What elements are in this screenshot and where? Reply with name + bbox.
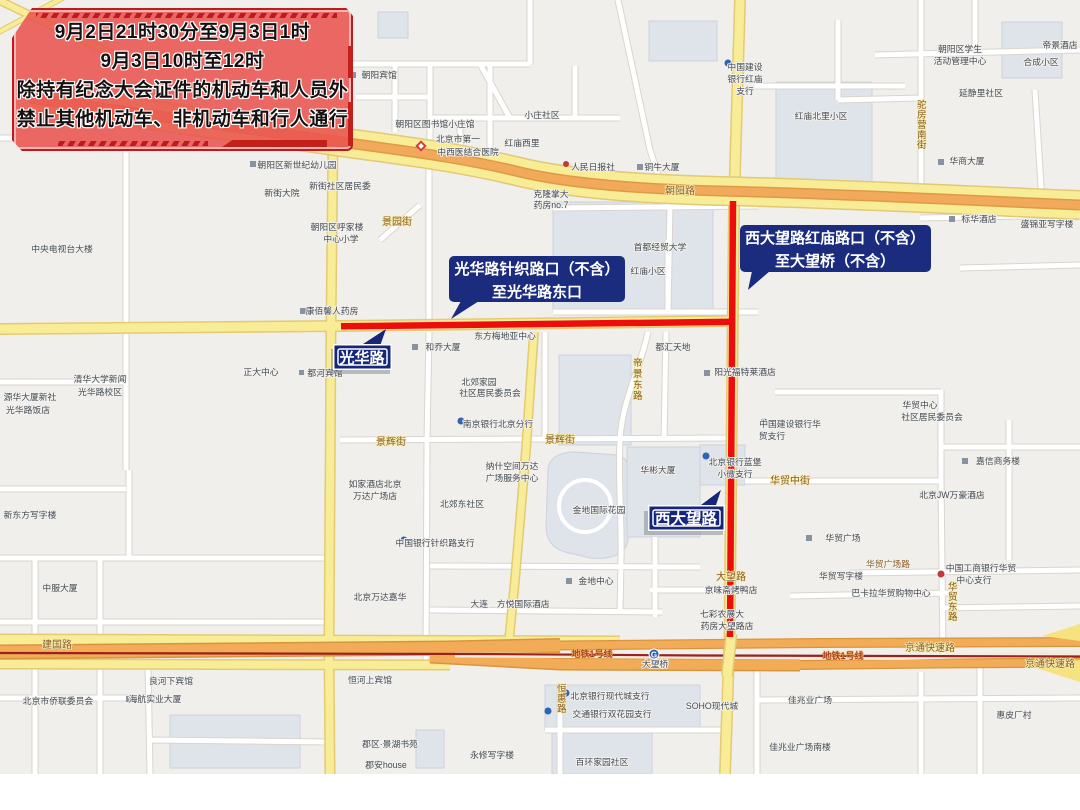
svg-text:北京JW万豪酒店: 北京JW万豪酒店	[919, 489, 985, 500]
svg-text:华商大厦: 华商大厦	[949, 155, 984, 166]
svg-text:京通快速路: 京通快速路	[1025, 657, 1075, 670]
svg-text:金地中心: 金地中心	[578, 575, 613, 586]
svg-text:华贸写字楼: 华贸写字楼	[819, 570, 863, 581]
svg-text:佳兆业广场: 佳兆业广场	[788, 694, 832, 705]
svg-text:北郊东社区: 北郊东社区	[440, 498, 484, 509]
svg-text:红庙北里小区: 红庙北里小区	[795, 110, 848, 121]
svg-text:佳兆业广场南楼: 佳兆业广场南楼	[769, 741, 831, 752]
svg-text:景辉街: 景辉街	[376, 435, 406, 448]
svg-text:标华酒店: 标华酒店	[961, 213, 996, 224]
svg-text:北京市第一: 北京市第一	[436, 133, 480, 144]
svg-text:如家酒店北京: 如家酒店北京	[349, 478, 402, 489]
svg-text:支行: 支行	[736, 85, 754, 96]
svg-text:京通快速路: 京通快速路	[905, 641, 955, 654]
svg-text:贸支行: 贸支行	[759, 430, 786, 441]
svg-text:郡区·景湖书苑: 郡区·景湖书苑	[362, 738, 418, 749]
svg-text:驼房营南街: 驼房营南街	[917, 99, 927, 151]
svg-text:至大望桥（不含）: 至大望桥（不含）	[775, 252, 895, 270]
svg-text:中心小学: 中心小学	[323, 233, 358, 244]
svg-text:新街大院: 新街大院	[264, 187, 299, 198]
svg-text:惠皮厂村: 惠皮厂村	[996, 709, 1031, 720]
svg-text:交通银行双花园支行: 交通银行双花园支行	[572, 708, 651, 719]
svg-text:万达广场店: 万达广场店	[353, 490, 397, 501]
svg-text:大望路: 大望路	[716, 570, 746, 583]
svg-text:百环家园社区: 百环家园社区	[576, 756, 629, 767]
svg-text:红庙西里: 红庙西里	[504, 137, 539, 148]
svg-text:社区居民委员会: 社区居民委员会	[901, 411, 963, 422]
svg-text:克隆掌大: 克隆掌大	[533, 188, 568, 199]
svg-text:地铁1号线: 地铁1号线	[571, 648, 612, 659]
svg-text:朝阳路: 朝阳路	[665, 184, 695, 197]
svg-text:至光华路东口: 至光华路东口	[492, 283, 582, 301]
svg-text:朝阳区图书馆小庄馆: 朝阳区图书馆小庄馆	[395, 118, 474, 129]
svg-text:帝景东路: 帝景东路	[633, 357, 643, 402]
svg-text:北郊家园: 北郊家园	[461, 376, 496, 387]
svg-text:郡安house: 郡安house	[365, 759, 407, 770]
svg-text:源华大厦新社: 源华大厦新社	[4, 391, 57, 402]
svg-text:正大中心: 正大中心	[243, 366, 278, 377]
svg-text:七彩农展大: 七彩农展大	[700, 608, 744, 619]
svg-text:大连 方悦国际酒店: 大连 方悦国际酒店	[470, 598, 549, 609]
svg-text:北京万达嘉华: 北京万达嘉华	[354, 591, 407, 602]
svg-text:中心支行: 中心支行	[956, 574, 991, 585]
svg-text:华贸广场: 华贸广场	[825, 532, 860, 543]
svg-text:阳光福特莱酒店: 阳光福特莱酒店	[714, 366, 776, 377]
svg-text:帝景酒店: 帝景酒店	[1042, 39, 1077, 50]
svg-text:良河下宾馆: 良河下宾馆	[149, 675, 193, 686]
svg-text:北京银行蓝堡: 北京银行蓝堡	[709, 456, 762, 467]
svg-text:景辉街: 景辉街	[545, 433, 575, 446]
svg-text:中国建设: 中国建设	[727, 61, 762, 72]
svg-text:延静里社区: 延静里社区	[959, 87, 1003, 98]
svg-text:中服大厦: 中服大厦	[42, 582, 77, 593]
svg-text:小微支行: 小微支行	[717, 468, 752, 479]
svg-text:朝阳宾馆: 朝阳宾馆	[359, 69, 397, 80]
svg-text:康佰馨人药房: 康佰馨人药房	[306, 305, 359, 316]
svg-text:南京银行北京分行: 南京银行北京分行	[463, 418, 534, 429]
svg-text:华贸东路: 华贸东路	[948, 581, 958, 623]
svg-text:都汇天地: 都汇天地	[655, 341, 690, 352]
svg-text:广场服务中心: 广场服务中心	[486, 472, 539, 483]
svg-text:光华路饭店: 光华路饭店	[6, 404, 50, 415]
svg-text:中国工商银行华贸: 中国工商银行华贸	[946, 562, 1017, 573]
svg-text:新东方写字楼: 新东方写字楼	[4, 509, 57, 520]
svg-text:景园街: 景园街	[382, 215, 412, 228]
svg-text:恒惠路: 恒惠路	[557, 683, 567, 715]
svg-text:华彬大厦: 华彬大厦	[640, 464, 675, 475]
svg-text:合成小区: 合成小区	[1023, 56, 1058, 67]
svg-text:红庙小区: 红庙小区	[630, 265, 665, 276]
svg-text:金地国际花园: 金地国际花园	[573, 504, 626, 515]
svg-text:银行红庙: 银行红庙	[727, 73, 762, 84]
svg-text:华贸广场路: 华贸广场路	[866, 558, 910, 569]
svg-text:建国路: 建国路	[42, 638, 72, 651]
svg-text:小庄社区: 小庄社区	[524, 109, 559, 120]
svg-text:药房no.7: 药房no.7	[534, 199, 569, 210]
svg-text:北京银行现代城支行: 北京银行现代城支行	[570, 690, 649, 701]
svg-text:光华路针织路口（不含）: 光华路针织路口（不含）	[453, 260, 619, 278]
svg-text:铜牛大厦: 铜牛大厦	[644, 161, 679, 172]
svg-text:华贸中街: 华贸中街	[770, 474, 810, 487]
svg-text:西大望路红庙路口（不含）: 西大望路红庙路口（不含）	[745, 229, 925, 247]
svg-text:永修写字楼: 永修写字楼	[470, 749, 514, 760]
svg-text:北京市侨联委员会: 北京市侨联委员会	[23, 695, 94, 706]
svg-text:中央电视台大楼: 中央电视台大楼	[31, 243, 93, 254]
svg-text:社区居民委员会: 社区居民委员会	[459, 387, 521, 398]
svg-text:大望桥: 大望桥	[642, 658, 669, 669]
svg-text:光华路校区: 光华路校区	[78, 386, 122, 397]
svg-text:朝阳区学生: 朝阳区学生	[938, 43, 982, 54]
svg-text:纳什空间万达: 纳什空间万达	[486, 460, 539, 471]
svg-text:华贸中心: 华贸中心	[902, 399, 937, 410]
svg-text:海航实业大厦: 海航实业大厦	[129, 693, 182, 704]
svg-text:朝阳区呼家楼: 朝阳区呼家楼	[311, 221, 364, 232]
svg-text:首都经贸大学: 首都经贸大学	[634, 241, 687, 252]
svg-text:新街社区居民委: 新街社区居民委	[309, 180, 371, 191]
svg-text:和乔大厦: 和乔大厦	[425, 341, 460, 352]
svg-text:活动管理中心: 活动管理中心	[934, 55, 987, 66]
svg-text:京味斋烤鸭店: 京味斋烤鸭店	[705, 584, 758, 595]
svg-text:SOHO现代城: SOHO现代城	[686, 701, 738, 711]
svg-text:清华大学新闻: 清华大学新闻	[74, 373, 127, 384]
svg-text:中西医结合医院: 中西医结合医院	[437, 146, 499, 157]
svg-text:药房大望路店: 药房大望路店	[701, 620, 754, 631]
svg-text:人民日报社: 人民日报社	[571, 161, 615, 172]
svg-text:巴卡拉华贸购物中心: 巴卡拉华贸购物中心	[851, 587, 930, 598]
svg-text:中国银行针织路支行: 中国银行针织路支行	[395, 537, 474, 548]
svg-text:盛锦亚写字楼: 盛锦亚写字楼	[1021, 218, 1074, 229]
svg-text:光华路: 光华路	[338, 349, 385, 367]
svg-text:朝阳区新世纪幼儿园: 朝阳区新世纪幼儿园	[257, 159, 336, 170]
svg-text:西大望路: 西大望路	[655, 509, 718, 528]
svg-text:地铁1号线: 地铁1号线	[822, 650, 863, 661]
svg-text:中国建设银行华: 中国建设银行华	[759, 418, 821, 429]
svg-text:嘉信商务楼: 嘉信商务楼	[976, 455, 1020, 466]
svg-text:东方梅地亚中心: 东方梅地亚中心	[474, 330, 536, 341]
svg-text:恒河上宾馆: 恒河上宾馆	[348, 674, 392, 685]
